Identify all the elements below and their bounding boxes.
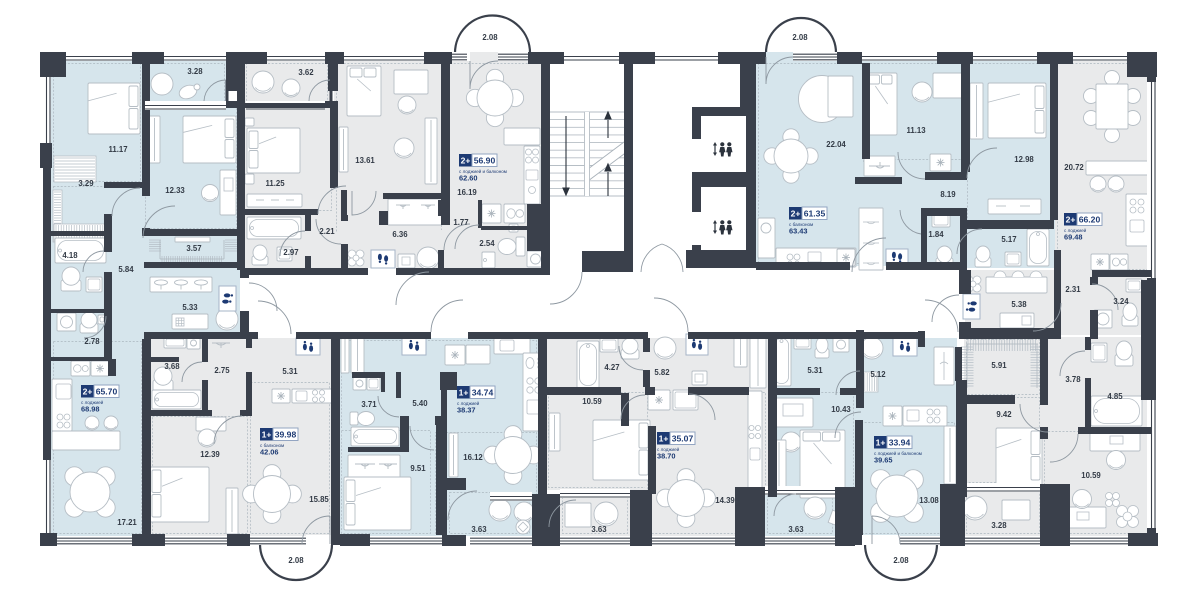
svg-text:13.61: 13.61 xyxy=(355,156,375,165)
svg-text:34.74: 34.74 xyxy=(472,388,494,398)
svg-text:16.19: 16.19 xyxy=(457,188,477,197)
svg-text:3.28: 3.28 xyxy=(991,521,1007,530)
svg-text:66.20: 66.20 xyxy=(1079,215,1101,225)
svg-text:4.85: 4.85 xyxy=(1107,392,1123,401)
svg-text:39.98: 39.98 xyxy=(275,430,297,440)
svg-text:12.33: 12.33 xyxy=(165,186,185,195)
svg-text:10.59: 10.59 xyxy=(1081,471,1101,480)
svg-text:1+: 1+ xyxy=(659,434,669,444)
svg-text:10.43: 10.43 xyxy=(831,405,851,414)
svg-text:39.65: 39.65 xyxy=(874,456,893,465)
svg-text:6.36: 6.36 xyxy=(392,230,408,239)
svg-text:62.60: 62.60 xyxy=(459,174,478,183)
svg-text:5.40: 5.40 xyxy=(412,399,428,408)
svg-text:16.12: 16.12 xyxy=(463,453,483,462)
svg-text:11.25: 11.25 xyxy=(265,179,285,188)
svg-text:2+: 2+ xyxy=(791,209,801,219)
svg-text:38.37: 38.37 xyxy=(457,406,476,415)
svg-text:10.59: 10.59 xyxy=(582,397,602,406)
svg-text:2.08: 2.08 xyxy=(792,33,808,42)
svg-text:12.98: 12.98 xyxy=(1014,155,1034,164)
svg-text:11.17: 11.17 xyxy=(108,145,127,154)
svg-text:3.28: 3.28 xyxy=(187,67,203,76)
svg-text:3.57: 3.57 xyxy=(186,244,201,253)
svg-text:61.35: 61.35 xyxy=(804,209,826,219)
svg-text:2.08: 2.08 xyxy=(288,556,304,565)
svg-text:5.12: 5.12 xyxy=(870,370,886,379)
svg-text:2.54: 2.54 xyxy=(479,239,495,248)
svg-text:3.29: 3.29 xyxy=(78,179,94,188)
svg-text:5.82: 5.82 xyxy=(654,368,670,377)
svg-text:17.21: 17.21 xyxy=(117,518,137,527)
svg-text:5.84: 5.84 xyxy=(118,265,134,274)
svg-text:3.24: 3.24 xyxy=(1113,297,1129,306)
svg-text:2.08: 2.08 xyxy=(482,33,498,42)
svg-text:1+: 1+ xyxy=(459,388,469,398)
svg-text:4.18: 4.18 xyxy=(62,251,78,260)
svg-text:5.17: 5.17 xyxy=(1001,235,1016,244)
svg-text:2.08: 2.08 xyxy=(893,556,909,565)
svg-text:12.39: 12.39 xyxy=(200,450,220,459)
svg-text:63.43: 63.43 xyxy=(789,227,808,236)
svg-text:1.77: 1.77 xyxy=(453,218,468,227)
svg-text:3.63: 3.63 xyxy=(591,525,607,534)
svg-text:13.08: 13.08 xyxy=(919,496,939,505)
svg-text:5.31: 5.31 xyxy=(807,366,823,375)
svg-text:68.98: 68.98 xyxy=(81,405,100,414)
svg-text:5.31: 5.31 xyxy=(282,367,298,376)
svg-text:8.19: 8.19 xyxy=(940,190,956,199)
svg-text:2.75: 2.75 xyxy=(214,366,230,375)
svg-text:42.06: 42.06 xyxy=(260,448,279,457)
svg-text:56.90: 56.90 xyxy=(474,156,496,166)
svg-text:5.38: 5.38 xyxy=(1011,300,1027,309)
svg-text:1.84: 1.84 xyxy=(928,230,944,239)
svg-text:2+: 2+ xyxy=(1066,215,1076,225)
svg-text:2.78: 2.78 xyxy=(84,337,100,346)
svg-text:35.07: 35.07 xyxy=(672,434,694,444)
svg-text:9.42: 9.42 xyxy=(996,410,1012,419)
svg-text:33.94: 33.94 xyxy=(889,438,911,448)
svg-text:3.63: 3.63 xyxy=(788,525,804,534)
svg-text:3.78: 3.78 xyxy=(1065,375,1081,384)
svg-text:2+: 2+ xyxy=(461,156,471,166)
svg-text:2.21: 2.21 xyxy=(319,227,335,236)
svg-text:2+: 2+ xyxy=(83,387,93,397)
svg-text:5.33: 5.33 xyxy=(182,303,198,312)
svg-text:11.13: 11.13 xyxy=(906,126,926,135)
svg-text:4.27: 4.27 xyxy=(604,363,619,372)
svg-text:14.39: 14.39 xyxy=(715,496,735,505)
svg-text:69.48: 69.48 xyxy=(1064,233,1083,242)
svg-text:65.70: 65.70 xyxy=(96,387,118,397)
svg-text:1+: 1+ xyxy=(262,430,272,440)
svg-text:5.91: 5.91 xyxy=(991,361,1007,370)
svg-text:3.71: 3.71 xyxy=(361,400,377,409)
svg-text:22.04: 22.04 xyxy=(826,140,846,149)
svg-text:3.68: 3.68 xyxy=(164,362,180,371)
svg-text:2.31: 2.31 xyxy=(1065,285,1081,294)
svg-text:1+: 1+ xyxy=(876,438,886,448)
svg-text:3.63: 3.63 xyxy=(471,525,487,534)
svg-text:3.62: 3.62 xyxy=(298,68,314,77)
svg-text:38.70: 38.70 xyxy=(657,452,676,461)
svg-text:9.51: 9.51 xyxy=(410,464,426,473)
svg-text:15.85: 15.85 xyxy=(309,495,329,504)
svg-text:2.97: 2.97 xyxy=(283,248,298,257)
svg-text:20.72: 20.72 xyxy=(1064,163,1084,172)
